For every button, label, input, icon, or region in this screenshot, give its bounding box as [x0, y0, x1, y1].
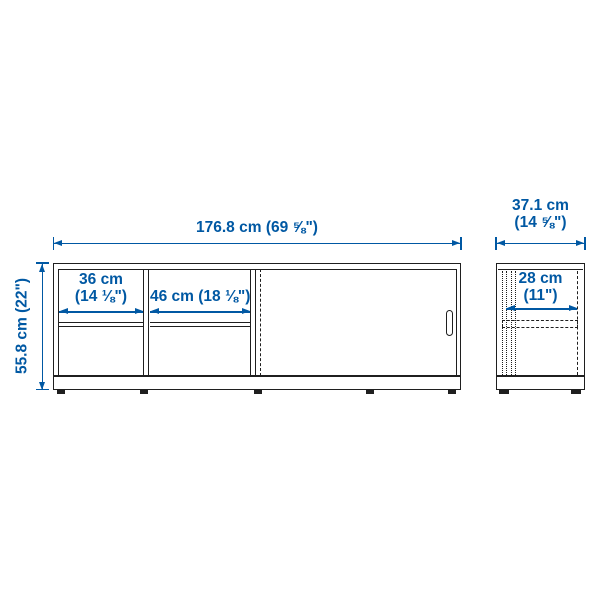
- middle-compartment-width-label: 46 cm (18 ⅛"): [150, 288, 250, 305]
- side-width-tick-left: [495, 237, 497, 250]
- arrowhead-up-icon: [39, 264, 45, 272]
- left-compartment-width-label-line2: (14 ⅛"): [59, 288, 143, 305]
- inner-depth-arrow: [506, 308, 577, 310]
- front-width-tick-right: [460, 237, 462, 250]
- arrowhead-left-icon: [54, 240, 62, 246]
- front-height-label: 55.8 cm (22"): [14, 278, 31, 374]
- front-width-arrow: [53, 243, 461, 245]
- front-divider-2: [250, 269, 256, 376]
- door-handle: [446, 310, 453, 336]
- front-height-tick-top: [36, 262, 50, 264]
- front-divider-1: [143, 269, 149, 376]
- shelf-middle: [150, 322, 250, 328]
- arrowhead-right-icon: [576, 240, 584, 246]
- left-compartment-width-label-line1: 36 cm: [59, 271, 143, 288]
- front-height-tick-bottom: [36, 389, 50, 391]
- side-foot: [571, 390, 581, 394]
- arrowhead-left-icon: [507, 305, 515, 311]
- arrowhead-left-icon: [151, 308, 159, 314]
- arrowhead-left-icon: [497, 240, 505, 246]
- sliding-door-edge-dashed-line: [260, 269, 261, 376]
- inner-depth-label-line1: 28 cm: [496, 270, 585, 287]
- side-width-label-line2: (14 ⅝"): [496, 214, 585, 231]
- side-width-arrow: [496, 243, 585, 245]
- left-compartment-width-arrow: [59, 311, 143, 313]
- arrowhead-right-icon: [452, 240, 460, 246]
- side-width-label-line1: 37.1 cm: [496, 197, 585, 214]
- arrowhead-right-icon: [242, 308, 250, 314]
- hidden-shelf-dashed-outline: [502, 320, 578, 328]
- front-foot: [366, 390, 374, 394]
- front-plinth: [53, 376, 461, 390]
- side-foot: [499, 390, 509, 394]
- arrowhead-left-icon: [60, 308, 68, 314]
- side-width-tick-right: [584, 237, 586, 250]
- front-width-label: 176.8 cm (69 ⅝"): [53, 219, 461, 236]
- front-foot: [57, 390, 65, 394]
- front-foot: [448, 390, 456, 394]
- arrowhead-right-icon: [135, 308, 143, 314]
- arrowhead-right-icon: [569, 305, 577, 311]
- front-foot: [254, 390, 262, 394]
- front-height-arrow: [42, 263, 44, 390]
- front-width-tick-left: [53, 237, 55, 250]
- side-plinth: [496, 376, 585, 390]
- middle-compartment-width-arrow: [150, 311, 250, 313]
- product-dimension-diagram: 176.8 cm (69 ⅝") 55.8 cm (22") 36 cm (14…: [0, 0, 600, 600]
- front-foot: [140, 390, 148, 394]
- shelf-left: [59, 322, 143, 328]
- inner-depth-label-line2: (11"): [496, 287, 585, 304]
